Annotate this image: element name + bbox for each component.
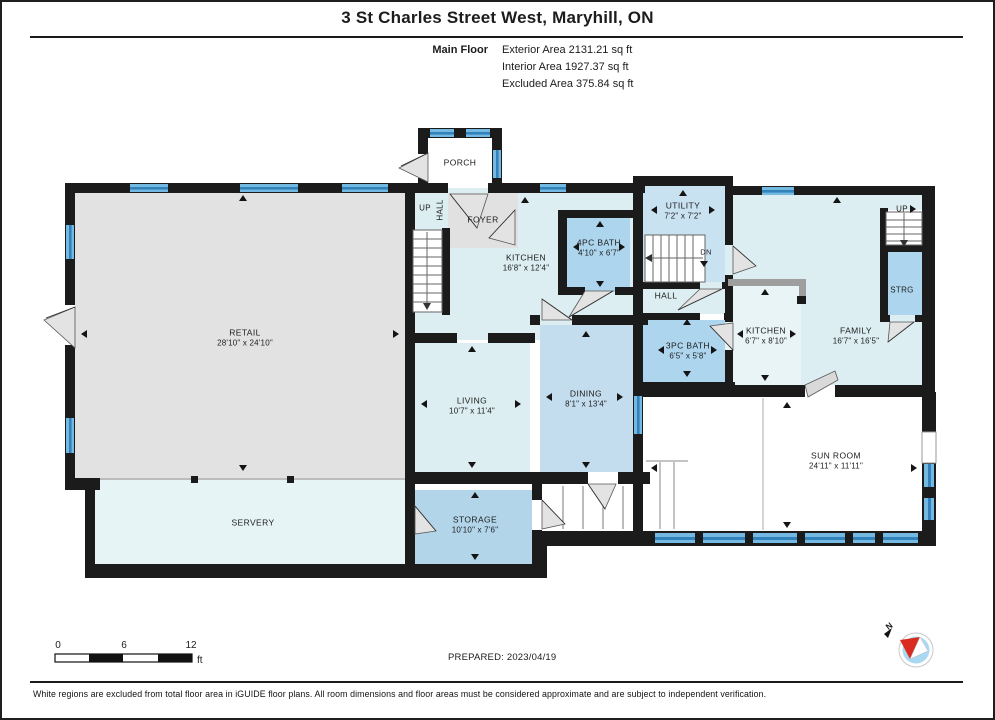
label-hall-vertical: HALL bbox=[436, 199, 445, 220]
room-fills-layer bbox=[65, 138, 923, 570]
scale-tick-6: 6 bbox=[121, 640, 127, 651]
disclaimer-text: White regions are excluded from total fl… bbox=[33, 689, 963, 699]
scale-bar-graphic bbox=[55, 654, 192, 662]
room-label-utility: UTILITY7'2" x 7'2" bbox=[664, 200, 701, 221]
room-label-4pc-bath: 4PC BATH4'10" x 6'7" bbox=[577, 237, 621, 258]
room-label-3pc-bath: 3PC BATH6'5" x 5'8" bbox=[666, 340, 710, 361]
room-label-living: LIVING10'7" x 11'4" bbox=[449, 395, 495, 416]
room-label-kitchen: KITCHEN16'8" x 12'4" bbox=[503, 252, 549, 273]
label-dn: DN bbox=[700, 248, 711, 257]
room-label-sun-room: SUN ROOM24'11" x 11'11" bbox=[809, 450, 863, 471]
label-up-right: UP bbox=[896, 205, 908, 214]
room-label-porch: PORCH bbox=[444, 157, 477, 168]
room-label-servery: SERVERY bbox=[231, 517, 274, 528]
floorplan-graphic bbox=[0, 0, 995, 720]
room-label-retail: RETAIL28'10" x 24'10" bbox=[217, 327, 273, 348]
footer-divider bbox=[30, 681, 963, 683]
room-label-dining: DINING8'1" x 13'4" bbox=[565, 388, 607, 409]
label-up-left: UP bbox=[419, 204, 431, 213]
prepared-date: PREPARED: 2023/04/19 bbox=[448, 652, 556, 663]
floorplan-page: 3 St Charles Street West, Maryhill, ON M… bbox=[0, 0, 995, 720]
scale-tick-12: 12 bbox=[185, 640, 196, 651]
room-label-strg: STRG bbox=[890, 286, 913, 295]
room-label-kitchen2: KITCHEN6'7" x 8'10" bbox=[745, 325, 787, 346]
scale-tick-0: 0 bbox=[55, 640, 61, 651]
scale-unit: ft bbox=[197, 655, 203, 666]
room-label-family: FAMILY16'7" x 16'5" bbox=[833, 325, 879, 346]
compass-icon bbox=[884, 628, 933, 667]
room-label-foyer: FOYER bbox=[467, 214, 498, 225]
room-label-storage: STORAGE10'10" x 7'6" bbox=[452, 514, 498, 535]
room-label-hall: HALL bbox=[655, 290, 678, 301]
